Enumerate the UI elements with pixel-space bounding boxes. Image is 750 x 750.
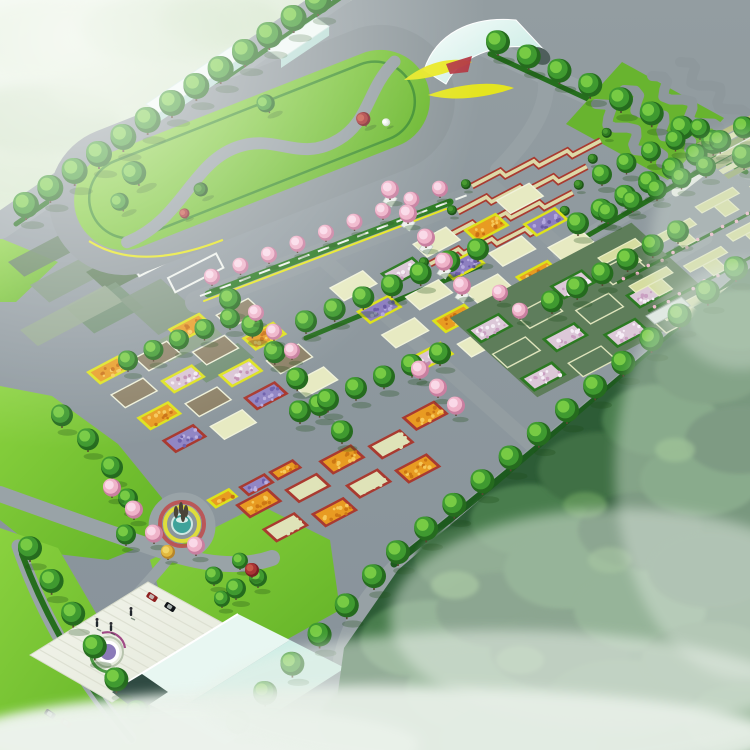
atmospheric-glow: [0, 0, 750, 750]
rendering-canvas: [0, 0, 750, 750]
fog-layer: [0, 0, 750, 750]
site-plan-rendering: [0, 0, 750, 750]
